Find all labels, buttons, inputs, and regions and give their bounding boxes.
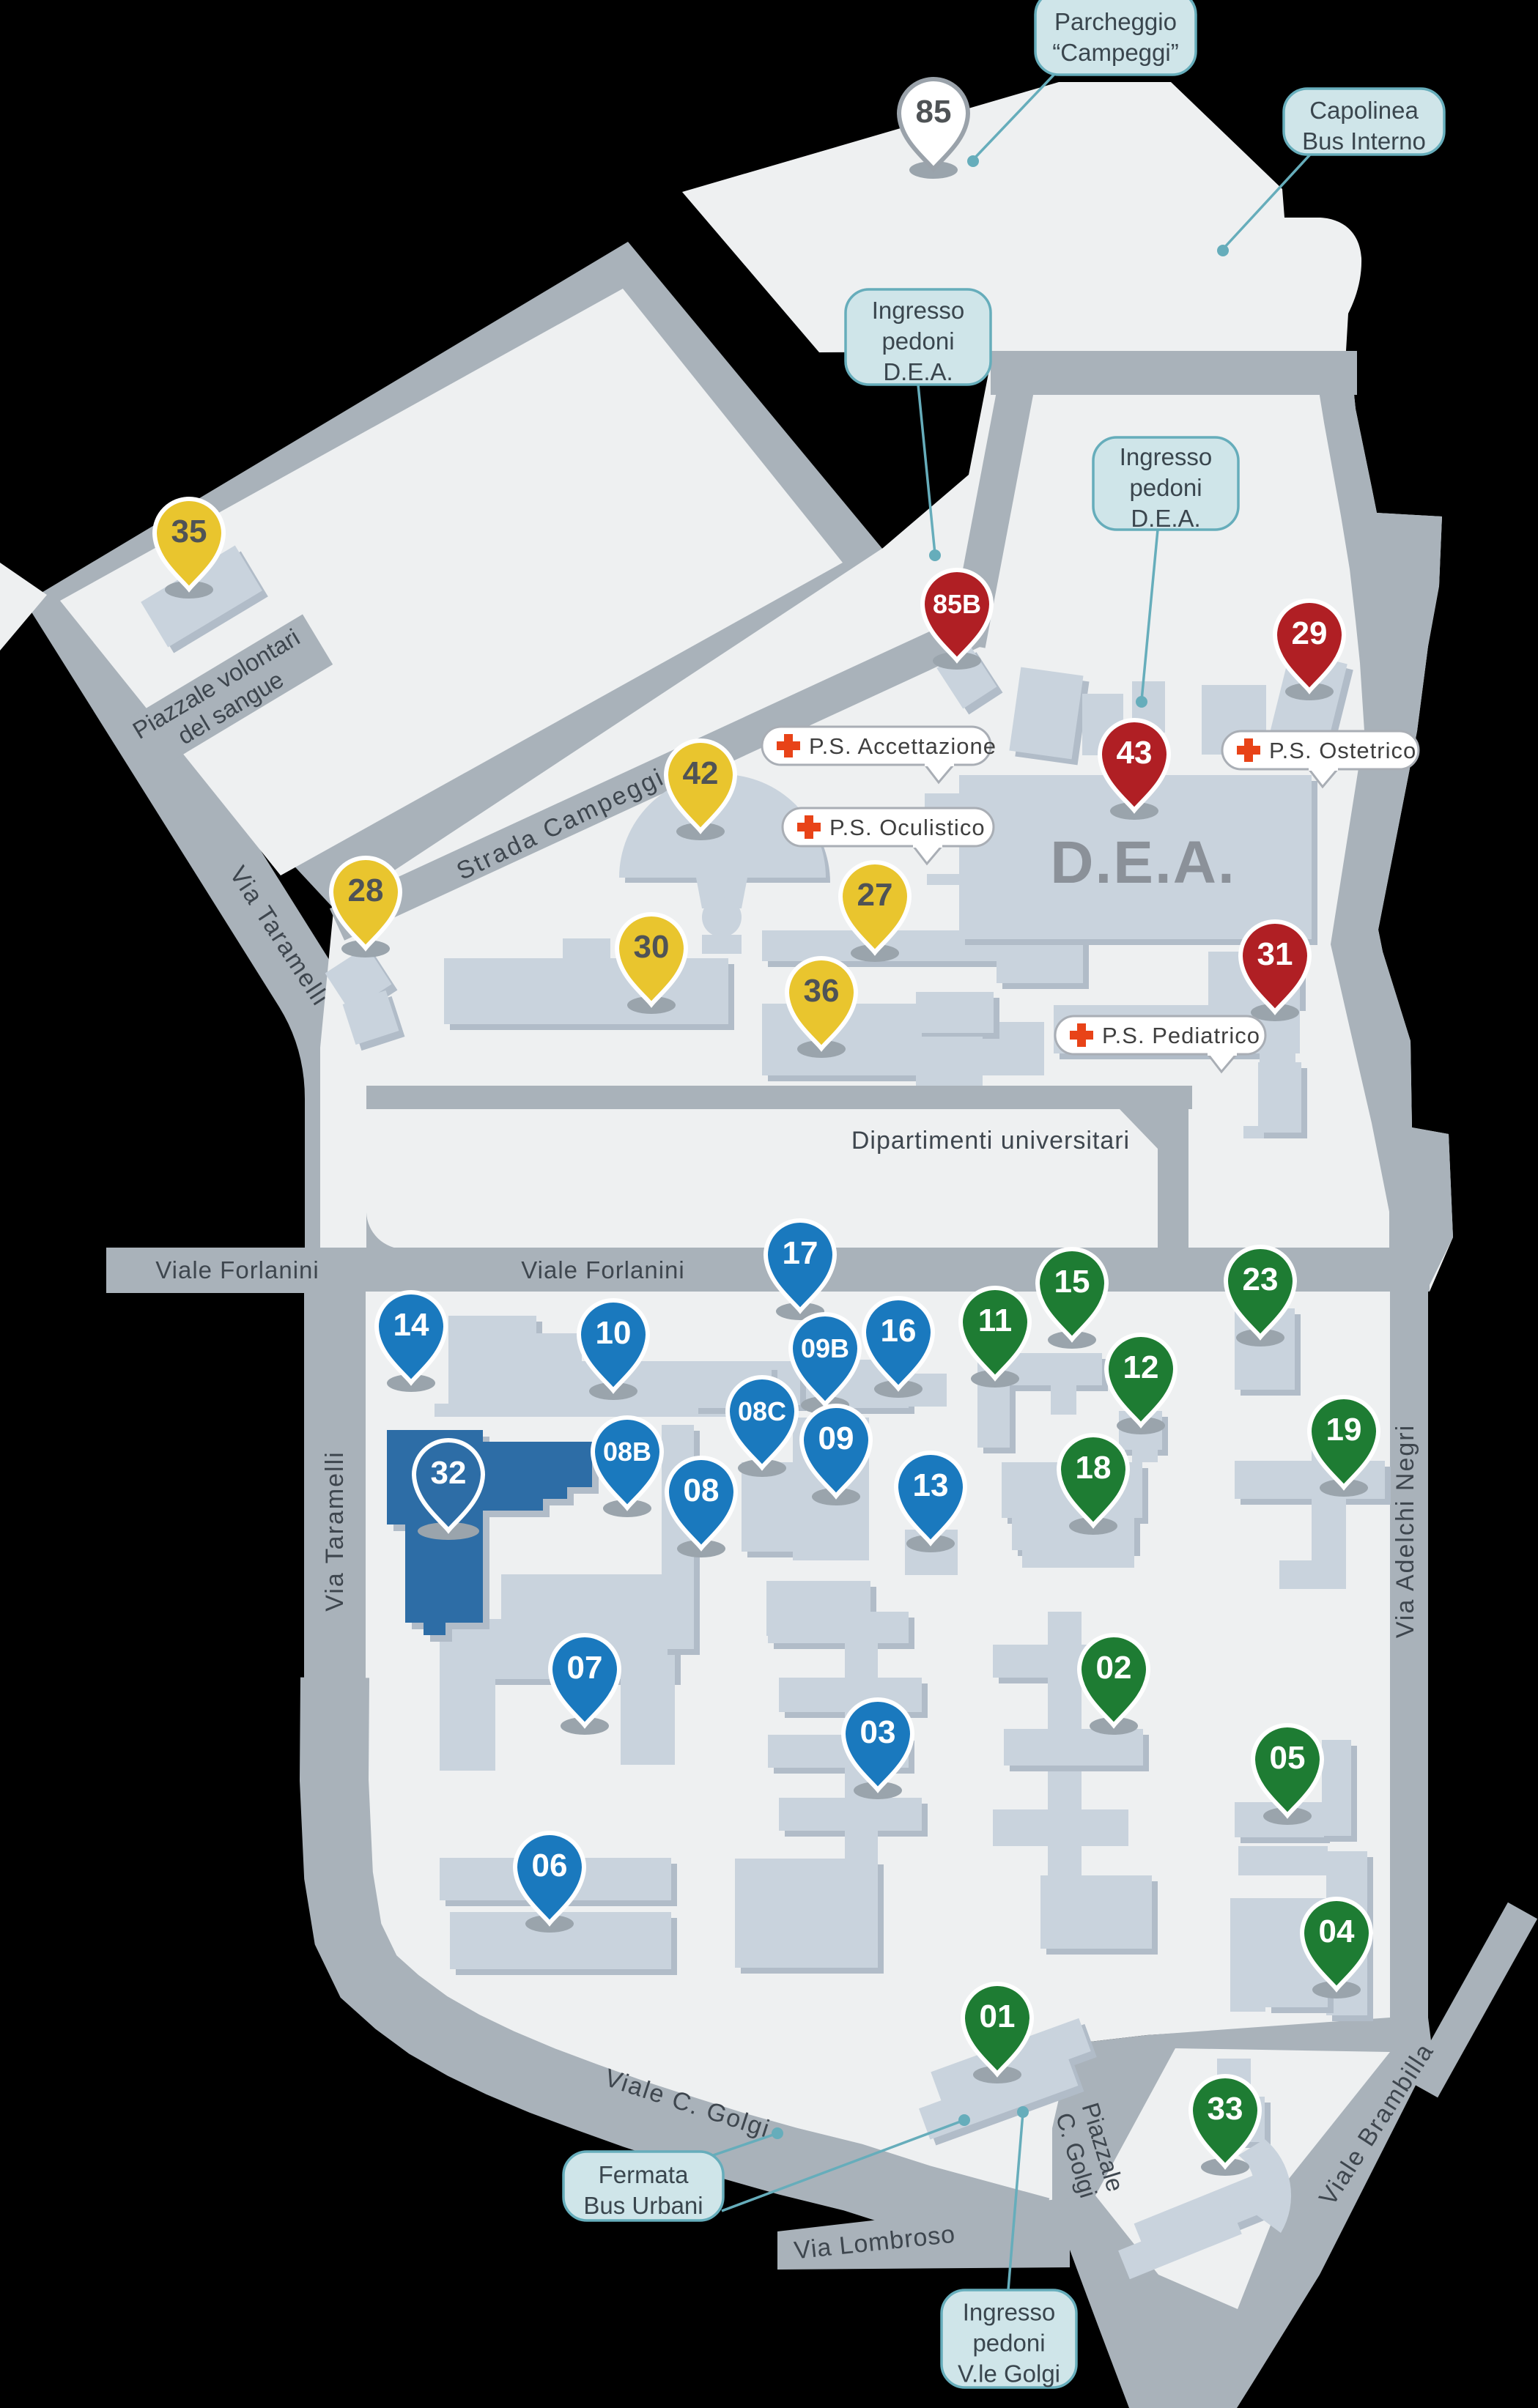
svg-text:D.E.A.: D.E.A.	[1131, 505, 1200, 532]
svg-text:pedoni: pedoni	[1129, 474, 1202, 501]
svg-text:Via Adelchi Negri: Via Adelchi Negri	[1391, 1424, 1419, 1638]
svg-text:Parcheggio: Parcheggio	[1054, 8, 1177, 35]
svg-text:42: 42	[683, 755, 719, 791]
svg-text:Bus Interno: Bus Interno	[1302, 127, 1426, 155]
svg-text:08: 08	[684, 1472, 720, 1508]
svg-text:14: 14	[393, 1307, 429, 1343]
svg-text:V.le Golgi: V.le Golgi	[958, 2360, 1060, 2387]
svg-text:Dipartimenti universitari: Dipartimenti universitari	[851, 1127, 1130, 1155]
svg-text:pedoni: pedoni	[881, 327, 954, 355]
svg-text:15: 15	[1054, 1264, 1090, 1300]
svg-text:05: 05	[1270, 1740, 1306, 1776]
svg-text:17: 17	[783, 1235, 818, 1271]
svg-text:12: 12	[1123, 1349, 1159, 1385]
svg-text:23: 23	[1243, 1262, 1279, 1297]
svg-text:Viale Forlanini: Viale Forlanini	[155, 1256, 319, 1283]
svg-text:27: 27	[857, 877, 893, 913]
svg-text:Via Taramelli: Via Taramelli	[321, 1451, 349, 1611]
svg-text:Ingresso: Ingresso	[872, 297, 965, 324]
svg-text:08B: 08B	[603, 1437, 651, 1467]
svg-text:19: 19	[1326, 1412, 1362, 1448]
svg-text:04: 04	[1319, 1914, 1355, 1949]
svg-text:09B: 09B	[801, 1333, 849, 1363]
svg-text:06: 06	[532, 1848, 568, 1883]
svg-text:Bus Urbani: Bus Urbani	[583, 2192, 703, 2219]
svg-text:pedoni: pedoni	[972, 2330, 1045, 2357]
svg-text:P.S. Pediatrico: P.S. Pediatrico	[1102, 1023, 1260, 1048]
svg-text:“Campeggi”: “Campeggi”	[1052, 39, 1178, 66]
svg-text:D.E.A.: D.E.A.	[883, 358, 953, 385]
svg-text:11: 11	[978, 1303, 1013, 1338]
svg-text:85B: 85B	[933, 589, 981, 619]
svg-text:01: 01	[980, 1998, 1016, 2034]
svg-text:Ingresso: Ingresso	[1120, 443, 1213, 470]
svg-text:85: 85	[916, 94, 952, 130]
svg-text:31: 31	[1257, 936, 1293, 972]
svg-text:30: 30	[634, 929, 670, 965]
svg-text:08C: 08C	[738, 1396, 786, 1426]
svg-text:35: 35	[171, 514, 207, 549]
svg-text:03: 03	[860, 1714, 896, 1750]
svg-text:07: 07	[567, 1650, 603, 1686]
svg-text:P.S. Accettazione: P.S. Accettazione	[809, 733, 997, 759]
svg-text:Capolinea: Capolinea	[1309, 97, 1419, 124]
svg-text:16: 16	[881, 1313, 917, 1349]
svg-text:33: 33	[1208, 2091, 1243, 2127]
svg-text:Ingresso: Ingresso	[963, 2299, 1056, 2326]
svg-text:Viale Forlanini: Viale Forlanini	[521, 1256, 685, 1283]
svg-text:29: 29	[1292, 615, 1328, 651]
svg-text:13: 13	[913, 1467, 949, 1503]
svg-text:43: 43	[1117, 735, 1153, 771]
svg-text:02: 02	[1096, 1650, 1132, 1686]
svg-text:28: 28	[348, 873, 384, 908]
svg-text:18: 18	[1076, 1450, 1112, 1486]
svg-text:Fermata: Fermata	[599, 2161, 689, 2188]
svg-text:P.S. Oculistico: P.S. Oculistico	[829, 815, 986, 840]
svg-text:36: 36	[804, 973, 840, 1009]
svg-text:D.E.A.: D.E.A.	[1050, 829, 1235, 896]
svg-text:10: 10	[596, 1315, 632, 1351]
svg-text:P.S. Ostetrico: P.S. Ostetrico	[1269, 738, 1416, 763]
svg-text:32: 32	[431, 1455, 467, 1491]
svg-text:09: 09	[818, 1420, 854, 1456]
